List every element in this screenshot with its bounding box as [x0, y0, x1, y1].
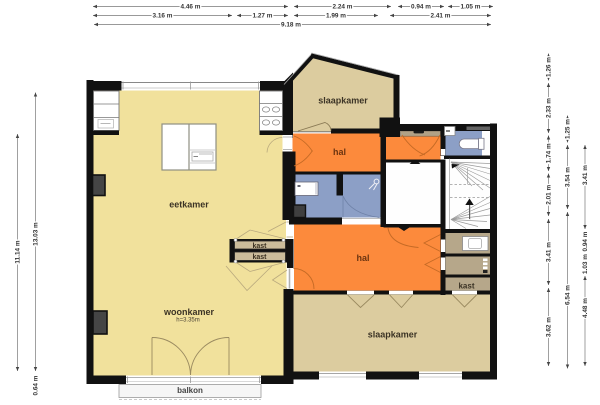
svg-text:woonkamer: woonkamer: [163, 307, 215, 317]
svg-text:1.26 m: 1.26 m: [546, 57, 553, 77]
svg-text:1.25 m: 1.25 m: [565, 119, 572, 139]
svg-text:13.03 m: 13.03 m: [33, 222, 40, 246]
svg-text:hal: hal: [356, 253, 369, 263]
svg-text:3.16 m: 3.16 m: [153, 13, 173, 20]
svg-text:3.41 m: 3.41 m: [546, 242, 553, 262]
svg-text:kast: kast: [252, 254, 267, 261]
svg-text:1.03 m: 1.03 m: [582, 254, 589, 274]
svg-text:0.64 m: 0.64 m: [33, 375, 40, 395]
svg-text:9.18 m: 9.18 m: [281, 22, 301, 29]
svg-text:1.05 m: 1.05 m: [461, 4, 481, 11]
svg-text:h=3.35m: h=3.35m: [176, 318, 200, 324]
svg-text:3.54 m: 3.54 m: [565, 167, 572, 187]
svg-text:2.33 m: 2.33 m: [546, 98, 553, 118]
svg-text:hal: hal: [333, 147, 346, 157]
svg-text:eetkamer: eetkamer: [169, 199, 209, 209]
svg-text:2.01 m: 2.01 m: [546, 184, 553, 204]
svg-text:1.74 m: 1.74 m: [546, 143, 553, 163]
svg-text:slaapkamer: slaapkamer: [368, 329, 418, 339]
svg-text:0.94 m: 0.94 m: [411, 4, 431, 11]
svg-text:2.24 m: 2.24 m: [333, 4, 353, 11]
svg-text:4.48 m: 4.48 m: [582, 298, 589, 318]
svg-text:kast: kast: [458, 281, 474, 290]
svg-text:1.27 m: 1.27 m: [253, 13, 273, 20]
svg-text:6.54 m: 6.54 m: [565, 285, 572, 305]
svg-text:3.62 m: 3.62 m: [546, 317, 553, 337]
svg-text:1.99 m: 1.99 m: [326, 13, 346, 20]
svg-text:balkon: balkon: [177, 386, 203, 395]
svg-text:4.46 m: 4.46 m: [181, 4, 201, 11]
svg-text:3.41 m: 3.41 m: [582, 165, 589, 185]
svg-text:kast: kast: [252, 243, 267, 250]
svg-text:slaapkamer: slaapkamer: [318, 95, 368, 105]
svg-text:11.14 m: 11.14 m: [15, 240, 22, 263]
svg-text:0.94 m: 0.94 m: [582, 231, 589, 251]
svg-text:2.41 m: 2.41 m: [431, 13, 451, 20]
